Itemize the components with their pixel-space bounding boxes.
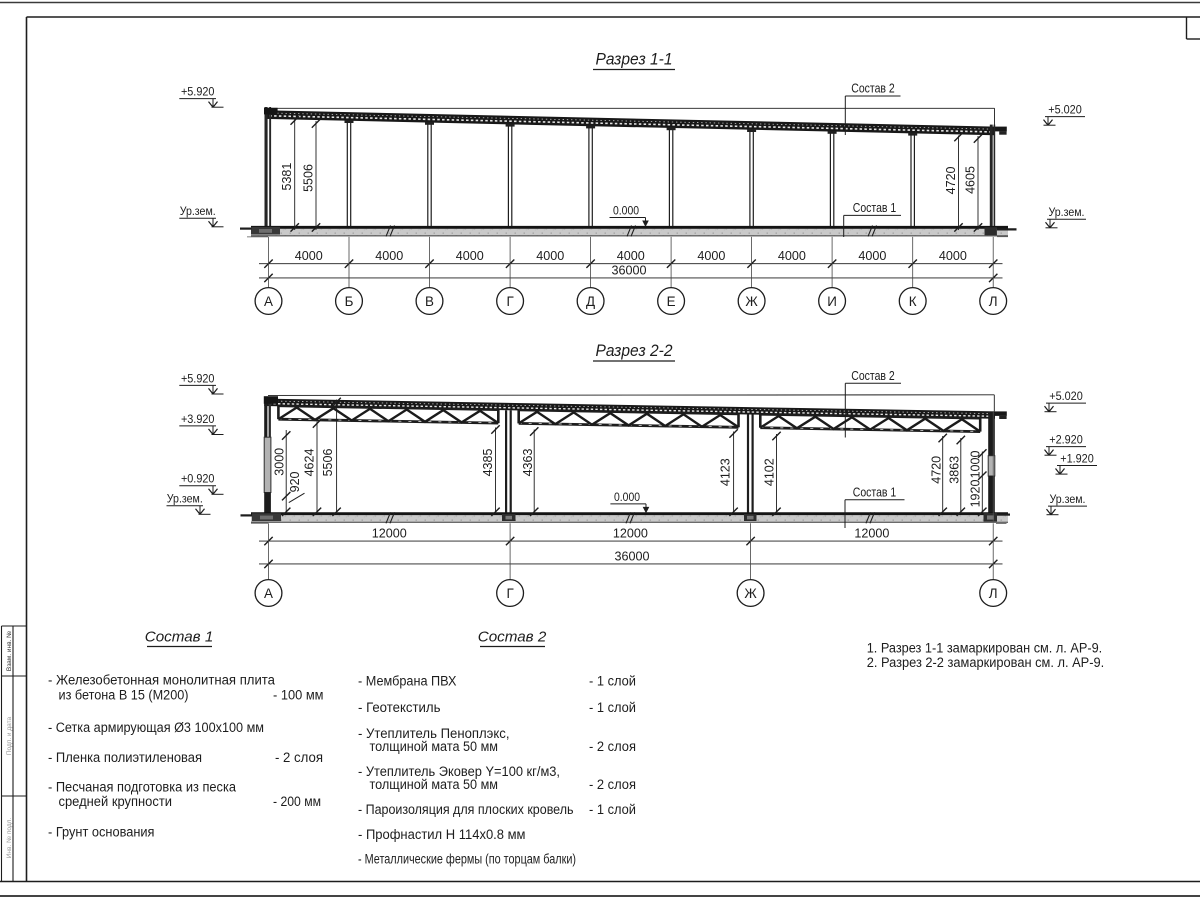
svg-text:- 200 мм: - 200 мм — [273, 794, 321, 809]
svg-text:36000: 36000 — [611, 264, 646, 278]
svg-text:- 2 слоя: - 2 слоя — [589, 777, 636, 792]
svg-text:Взам. инв. №: Взам. инв. № — [6, 631, 13, 671]
svg-text:Ур.зем.: Ур.зем. — [180, 204, 216, 218]
svg-text:+3.920: +3.920 — [181, 412, 215, 426]
svg-text:- 1 слой: - 1 слой — [589, 700, 636, 715]
svg-text:4000: 4000 — [858, 249, 886, 263]
svg-text:В: В — [425, 294, 434, 309]
svg-text:4000: 4000 — [536, 249, 564, 263]
svg-text:Состав 2: Состав 2 — [851, 82, 895, 96]
svg-text:1920: 1920 — [968, 480, 982, 508]
svg-text:Б: Б — [345, 294, 354, 309]
svg-text:4102: 4102 — [763, 458, 777, 486]
svg-text:Д: Д — [586, 294, 595, 309]
svg-text:- Мембрана ПВХ: - Мембрана ПВХ — [358, 674, 457, 689]
svg-text:4605: 4605 — [964, 166, 978, 194]
svg-text:- 1 слой: - 1 слой — [589, 674, 636, 689]
svg-text:- Пароизоляция для плоских кро: - Пароизоляция для плоских кровель — [358, 802, 574, 817]
svg-text:- 2 слоя: - 2 слоя — [275, 750, 323, 765]
svg-text:средней крупности: средней крупности — [59, 794, 173, 809]
svg-text:- 1 слой: - 1 слой — [589, 802, 636, 817]
svg-text:Ур.зем.: Ур.зем. — [1050, 492, 1086, 506]
svg-text:толщиной мата 50 мм: толщиной мата 50 мм — [370, 777, 499, 792]
svg-text:Состав 2: Состав 2 — [478, 629, 547, 646]
svg-text:12000: 12000 — [854, 527, 889, 541]
svg-text:Г: Г — [506, 294, 513, 309]
svg-text:12000: 12000 — [613, 527, 648, 541]
svg-text:12000: 12000 — [372, 527, 407, 541]
svg-text:5506: 5506 — [301, 164, 315, 192]
svg-text:3863: 3863 — [948, 456, 962, 484]
svg-text:А: А — [264, 586, 273, 601]
svg-text:Состав 1: Состав 1 — [145, 629, 214, 646]
svg-text:+0.920: +0.920 — [181, 472, 215, 486]
svg-text:К: К — [909, 294, 917, 309]
svg-text:Ж: Ж — [745, 294, 758, 309]
svg-text:Л: Л — [989, 586, 998, 601]
svg-text:Подп. и дата: Подп. и дата — [6, 716, 13, 755]
svg-text:Ур.зем.: Ур.зем. — [1049, 205, 1085, 219]
svg-text:4000: 4000 — [375, 249, 403, 263]
svg-text:5506: 5506 — [321, 449, 335, 477]
svg-text:4000: 4000 — [697, 249, 725, 263]
svg-text:1000: 1000 — [968, 451, 982, 479]
svg-text:из бетона В 15 (М200): из бетона В 15 (М200) — [59, 687, 189, 702]
svg-text:- 2 слоя: - 2 слоя — [589, 739, 636, 754]
svg-text:4000: 4000 — [778, 249, 806, 263]
svg-text:Л: Л — [989, 294, 998, 309]
svg-text:+5.920: +5.920 — [181, 371, 215, 385]
svg-text:2. Разрез 2-2 замаркирован см.: 2. Разрез 2-2 замаркирован см. л. АР-9. — [867, 655, 1104, 670]
svg-text:4720: 4720 — [929, 456, 943, 484]
svg-text:4000: 4000 — [939, 249, 967, 263]
svg-text:Г: Г — [506, 586, 513, 601]
svg-text:Состав 1: Состав 1 — [853, 486, 897, 500]
svg-text:3000: 3000 — [272, 448, 286, 476]
svg-text:+5.020: +5.020 — [1048, 103, 1082, 117]
svg-text:И: И — [827, 294, 837, 309]
svg-text:Разрез 2-2: Разрез 2-2 — [596, 342, 673, 360]
svg-text:4000: 4000 — [456, 249, 484, 263]
svg-text:Ур.зем.: Ур.зем. — [167, 492, 203, 506]
svg-text:4385: 4385 — [481, 449, 495, 477]
svg-text:А: А — [264, 294, 273, 309]
svg-text:- Песчаная подготовка из песка: - Песчаная подготовка из песка — [48, 779, 237, 794]
svg-text:- Грунт основания: - Грунт основания — [48, 824, 155, 839]
svg-text:+2.920: +2.920 — [1049, 433, 1083, 447]
svg-text:920: 920 — [288, 471, 302, 492]
svg-text:Ж: Ж — [744, 586, 757, 601]
svg-text:- 100 мм: - 100 мм — [273, 687, 324, 702]
svg-text:4000: 4000 — [617, 249, 645, 263]
svg-text:+5.920: +5.920 — [181, 85, 215, 99]
svg-text:толщиной мата 50 мм: толщиной мата 50 мм — [370, 739, 499, 754]
svg-text:- Металлические фермы (по торц: - Металлические фермы (по торцам балки) — [358, 852, 576, 867]
svg-text:5381: 5381 — [280, 163, 294, 191]
svg-text:- Пленка полиэтиленовая: - Пленка полиэтиленовая — [48, 750, 202, 765]
svg-text:0.000: 0.000 — [614, 490, 640, 504]
svg-text:4624: 4624 — [303, 449, 317, 477]
svg-text:+1.920: +1.920 — [1060, 452, 1094, 466]
svg-text:- Геотекстиль: - Геотекстиль — [358, 700, 441, 715]
svg-text:4363: 4363 — [521, 449, 535, 477]
svg-text:- Сетка армирующая Ø3 100х100: - Сетка армирующая Ø3 100х100 мм — [48, 720, 264, 735]
svg-text:+5.020: +5.020 — [1049, 389, 1083, 403]
svg-text:4123: 4123 — [719, 458, 733, 486]
svg-text:Состав 2: Состав 2 — [851, 369, 895, 383]
svg-text:- Железобетонная монолитная п: - Железобетонная монолитная плита — [48, 673, 276, 688]
svg-text:0.000: 0.000 — [613, 204, 639, 218]
svg-text:Е: Е — [667, 294, 676, 309]
svg-text:- Профнастил Н 114х0.8 мм: - Профнастил Н 114х0.8 мм — [358, 827, 526, 842]
svg-text:36000: 36000 — [614, 550, 649, 564]
svg-text:4000: 4000 — [295, 249, 323, 263]
svg-text:4720: 4720 — [944, 166, 958, 194]
svg-text:1. Разрез 1-1 замаркирован см.: 1. Разрез 1-1 замаркирован см. л. АР-9. — [867, 640, 1102, 655]
svg-text:Состав 1: Состав 1 — [853, 201, 897, 215]
svg-text:Инв. № подл.: Инв. № подл. — [6, 818, 13, 859]
svg-text:Разрез 1-1: Разрез 1-1 — [596, 51, 673, 69]
